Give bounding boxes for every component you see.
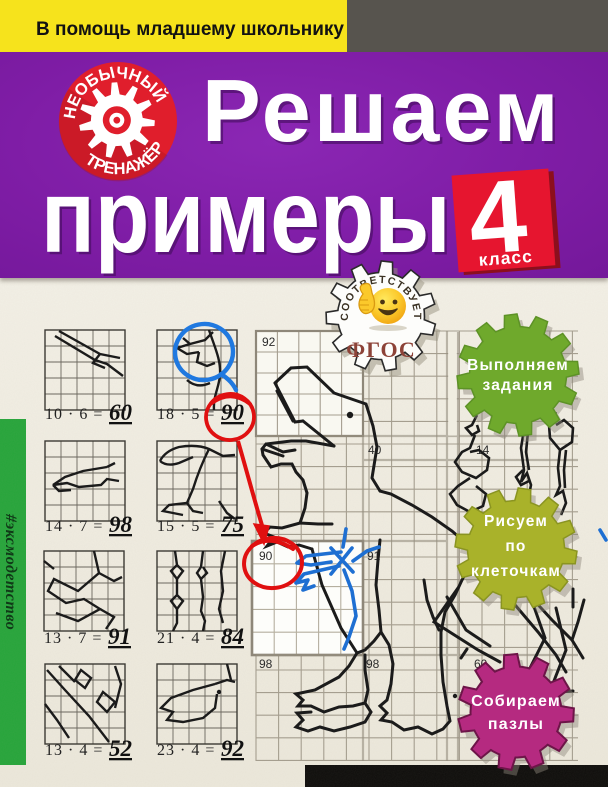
svg-text:23 · 4 =: 23 · 4 = [157, 742, 215, 759]
svg-text:пазлы: пазлы [488, 716, 544, 733]
svg-text:Собираем: Собираем [471, 693, 561, 710]
svg-text:Выполняем: Выполняем [467, 357, 569, 374]
svg-text:98: 98 [109, 512, 133, 537]
svg-text:примеры: примеры [41, 158, 451, 275]
svg-text:60: 60 [109, 400, 133, 425]
svg-text:13 · 7 =: 13 · 7 = [44, 630, 102, 647]
svg-text:10 · 6 =: 10 · 6 = [45, 406, 103, 423]
svg-text:52: 52 [109, 736, 132, 761]
svg-text:задания: задания [483, 377, 554, 394]
svg-text:92: 92 [221, 736, 244, 761]
svg-text:ФГОС: ФГОС [346, 337, 416, 362]
svg-text:клеточкам: клеточкам [471, 563, 561, 580]
svg-text:класс: класс [478, 246, 534, 270]
svg-text:13 · 4 =: 13 · 4 = [45, 742, 103, 759]
svg-text:75: 75 [221, 512, 244, 537]
svg-text:15 · 5 =: 15 · 5 = [157, 518, 215, 535]
svg-text:91: 91 [108, 624, 131, 649]
svg-text:90: 90 [221, 400, 245, 425]
svg-text:21 · 4 =: 21 · 4 = [157, 630, 215, 647]
svg-text:84: 84 [221, 624, 244, 649]
svg-text:98: 98 [366, 657, 380, 671]
svg-text:92: 92 [262, 335, 276, 349]
svg-text:Рисуем: Рисуем [484, 513, 548, 530]
svg-text:90: 90 [259, 549, 273, 563]
svg-text:по: по [505, 538, 526, 555]
svg-text:98: 98 [259, 657, 273, 671]
svg-text:14 · 7 =: 14 · 7 = [45, 518, 103, 535]
svg-text:Решаем: Решаем [202, 61, 562, 160]
